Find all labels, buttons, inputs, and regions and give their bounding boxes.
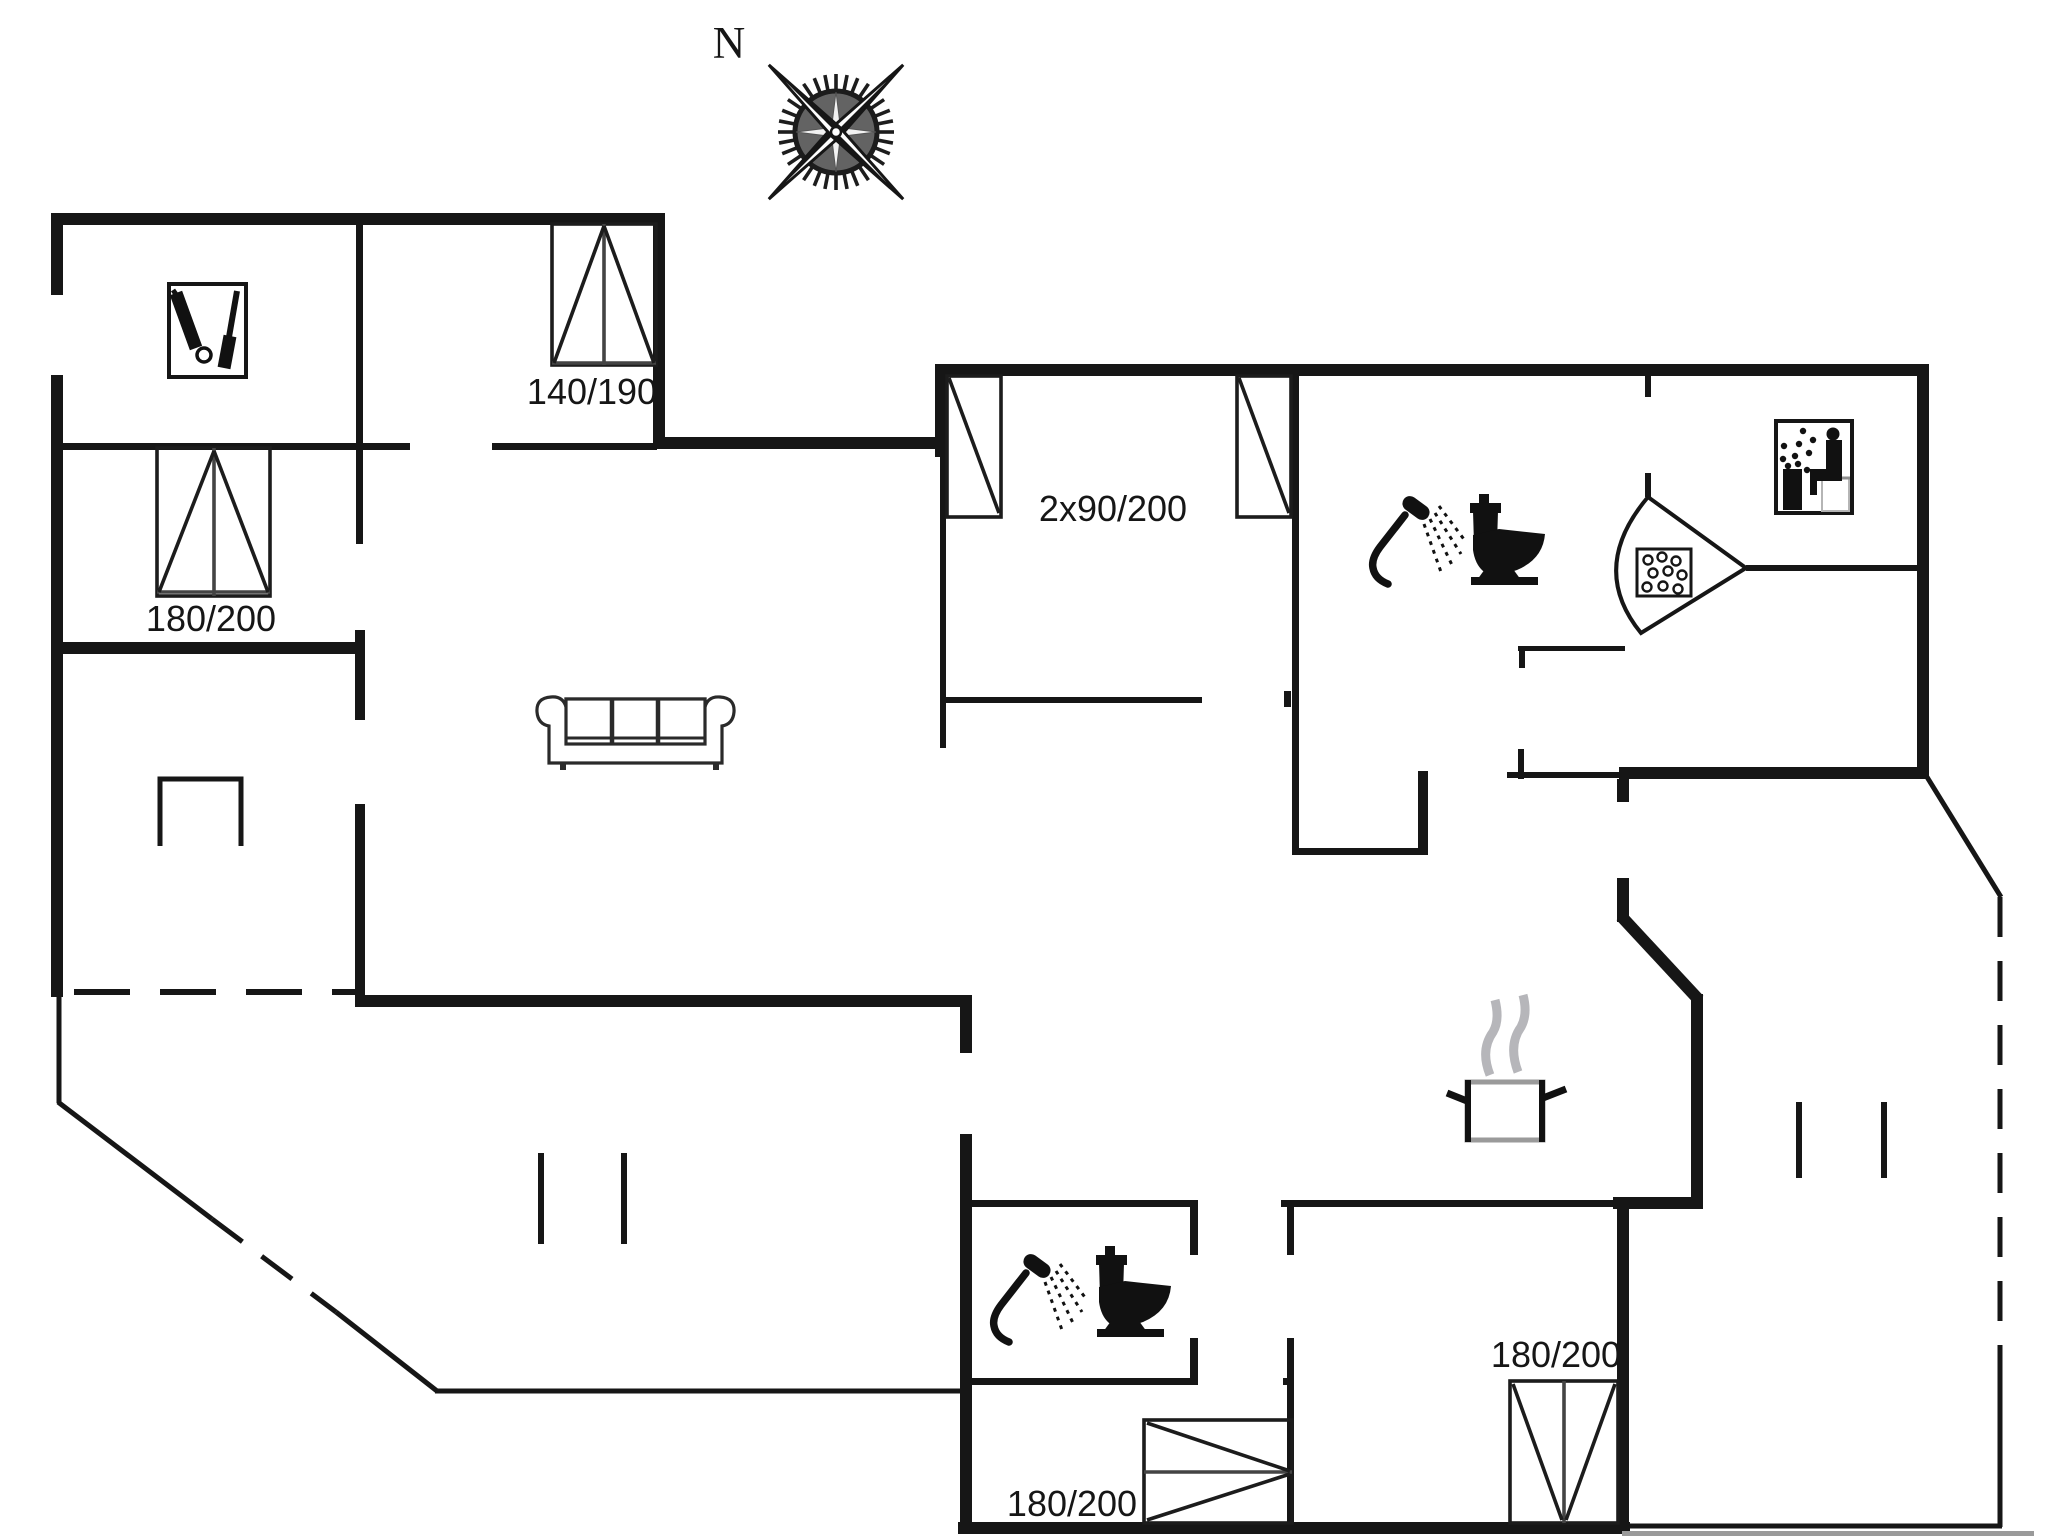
svg-text:180/200: 180/200 [146,598,276,639]
svg-text:180/200: 180/200 [1007,1483,1137,1524]
svg-text:N: N [713,18,746,68]
svg-text:140/190: 140/190 [527,371,657,412]
svg-text:2x90/200: 2x90/200 [1039,488,1187,529]
svg-text:180/200: 180/200 [1491,1334,1621,1375]
